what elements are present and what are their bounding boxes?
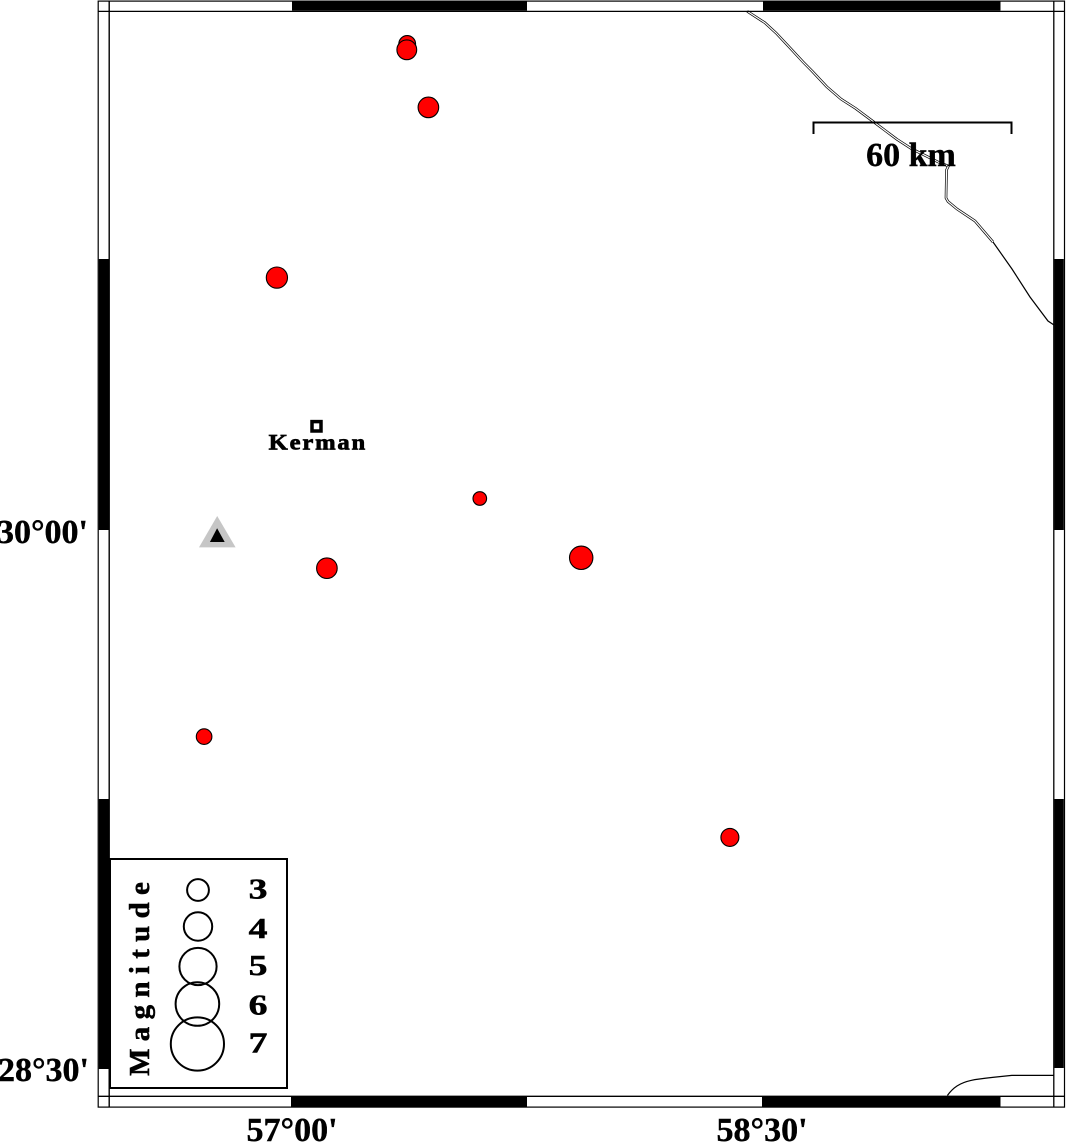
- svg-text:57°00': 57°00': [246, 1112, 337, 1145]
- svg-text:Kerman: Kerman: [269, 431, 367, 455]
- svg-text:3: 3: [249, 873, 268, 905]
- svg-text:Magnitude: Magnitude: [124, 875, 156, 1076]
- svg-text:28°30': 28°30': [0, 1052, 89, 1089]
- svg-text:58°30': 58°30': [716, 1112, 807, 1145]
- svg-text:60 km: 60 km: [866, 137, 956, 174]
- svg-text:4: 4: [249, 913, 268, 945]
- svg-text:7: 7: [249, 1027, 268, 1059]
- svg-text:30°00': 30°00': [0, 514, 88, 551]
- svg-text:5: 5: [249, 950, 268, 982]
- svg-text:6: 6: [249, 989, 268, 1021]
